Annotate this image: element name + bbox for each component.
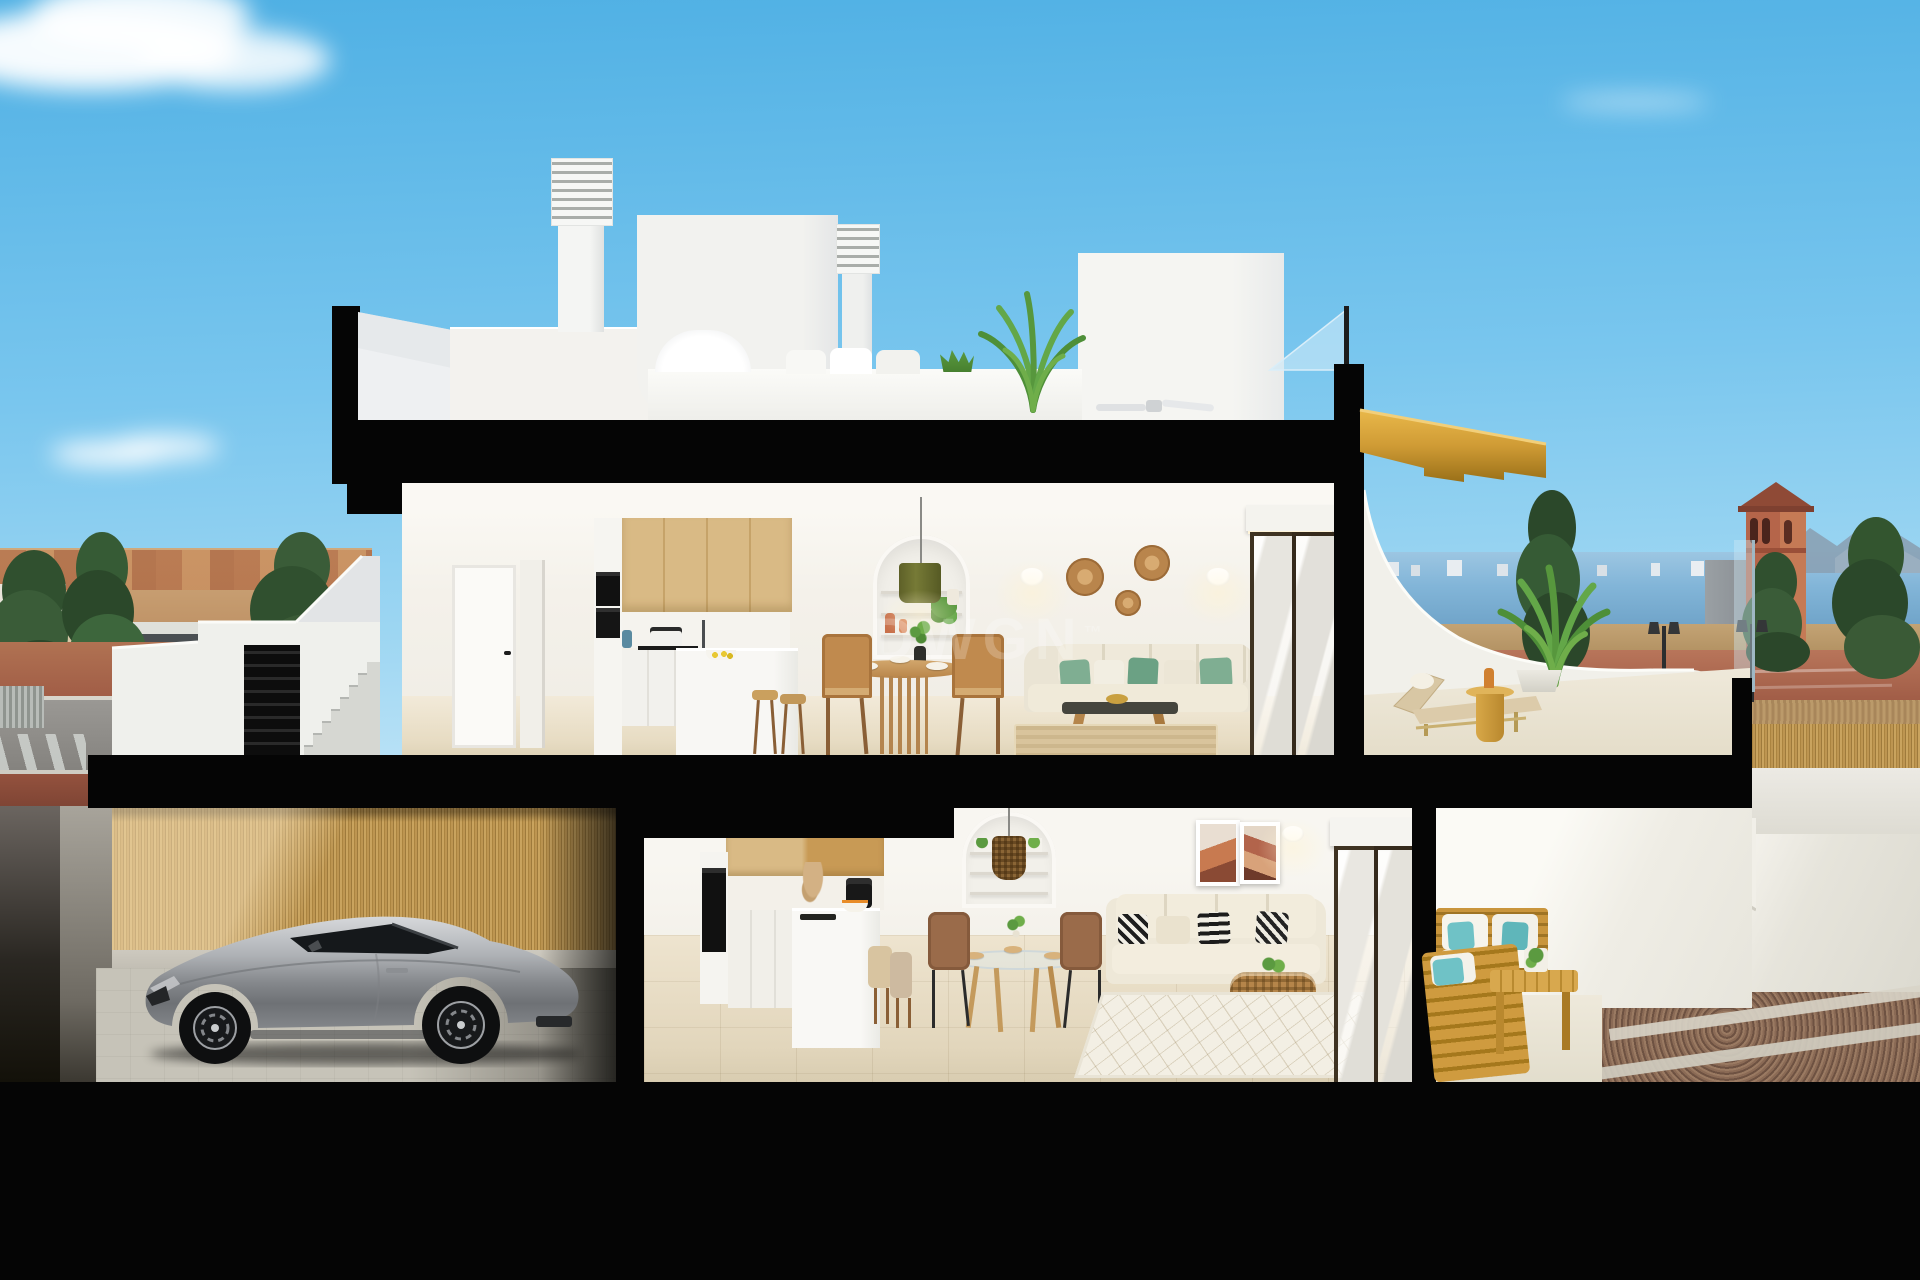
watermark: DWGN™ bbox=[872, 606, 1172, 670]
cloud-wisp bbox=[1560, 88, 1710, 118]
striped-pillow bbox=[1197, 911, 1231, 945]
patterned-pillow bbox=[1118, 914, 1148, 944]
dining-chair-left bbox=[818, 634, 880, 758]
roof-parapet-wall bbox=[450, 327, 650, 422]
table-plant bbox=[1256, 956, 1288, 976]
oven-lower bbox=[596, 608, 620, 638]
zebra-crossing bbox=[0, 734, 86, 774]
tree-conifer bbox=[1832, 515, 1920, 680]
oven-upper bbox=[596, 572, 620, 606]
rattan-wall-plate bbox=[1066, 558, 1104, 596]
rattan-wall-plate bbox=[1134, 545, 1170, 581]
louvered-chimney-cap bbox=[836, 224, 880, 274]
hall-door-open-leaf bbox=[520, 560, 545, 748]
patterned-pillow bbox=[1255, 911, 1289, 945]
bamboo-fence-right bbox=[1750, 724, 1920, 770]
table-plant bbox=[1004, 914, 1026, 950]
glass-door-panel bbox=[1292, 532, 1338, 764]
sconce-glow bbox=[1180, 560, 1256, 626]
rattan-pendant-lamp bbox=[992, 836, 1026, 880]
abstract-art bbox=[1196, 820, 1240, 886]
front-wheel bbox=[179, 992, 251, 1064]
ground-base-cabinets bbox=[728, 910, 798, 1008]
interfloor-slab-cut bbox=[88, 755, 1752, 808]
sconce-glow bbox=[1258, 818, 1328, 878]
ground-tall-unit bbox=[700, 852, 728, 1004]
garage-cut-wall bbox=[616, 806, 644, 1084]
cooking-pot bbox=[650, 627, 682, 647]
pampas-decor bbox=[798, 862, 828, 908]
diamond-rug bbox=[1074, 992, 1378, 1078]
table-pedestal-slats bbox=[880, 676, 928, 754]
cutaway-render-scene: DWGN™ bbox=[0, 0, 1920, 1280]
patio-bench-table bbox=[1490, 970, 1578, 1060]
entry-stairs bbox=[88, 550, 404, 762]
glass-door-panel bbox=[1250, 532, 1296, 764]
watermark-tm: ™ bbox=[1084, 623, 1102, 643]
teal-pillow bbox=[1432, 957, 1465, 986]
pendant-cord bbox=[1008, 806, 1010, 838]
garden-wall-right bbox=[1750, 768, 1920, 836]
bar-stool bbox=[780, 694, 806, 754]
corrugated-fence bbox=[0, 686, 44, 728]
kitchen-backsplash bbox=[622, 612, 790, 648]
ground-ceiling-bulkhead bbox=[644, 806, 954, 838]
hall-door bbox=[452, 565, 516, 748]
bench-plant bbox=[1524, 948, 1548, 972]
glass-door-panel bbox=[1334, 846, 1378, 1092]
louvered-chimney-cap bbox=[551, 158, 613, 226]
blind-box-upper bbox=[1246, 505, 1334, 531]
potted-plant-small bbox=[974, 838, 990, 852]
sink bbox=[800, 914, 836, 920]
foundation-cut bbox=[0, 1082, 1920, 1280]
rear-wheel bbox=[422, 986, 500, 1064]
blind-box-ground bbox=[1330, 818, 1412, 846]
watermark-text: DWGN bbox=[872, 607, 1084, 672]
bar-stool bbox=[752, 690, 778, 754]
teal-pillow bbox=[1447, 921, 1475, 951]
door-handle bbox=[504, 651, 511, 655]
beige-pillow bbox=[1156, 916, 1190, 944]
lemon-bowl bbox=[706, 650, 736, 660]
blue-vase bbox=[622, 630, 632, 648]
roof-parapet-left bbox=[356, 308, 452, 422]
glass-door-panel bbox=[1374, 846, 1416, 1092]
dining-chair-brown bbox=[924, 912, 976, 1032]
ground-island bbox=[792, 908, 880, 1048]
upper-kitchen-cabinets bbox=[622, 518, 792, 612]
timber-staircase bbox=[1358, 402, 1554, 488]
cloud-large bbox=[0, 0, 360, 160]
faucet bbox=[702, 620, 705, 648]
gold-bowl bbox=[1106, 694, 1128, 704]
amber-bottle bbox=[1484, 668, 1494, 688]
potted-plant-small bbox=[1026, 838, 1042, 852]
ceiling-fan bbox=[1096, 398, 1214, 416]
silver-sports-coupe bbox=[140, 884, 584, 1068]
cloud-small bbox=[50, 432, 230, 480]
roof-palm bbox=[975, 280, 1087, 422]
oven bbox=[702, 868, 726, 952]
glass-balustrade-roof bbox=[1266, 302, 1352, 372]
chimney-shaft bbox=[558, 222, 604, 332]
pendant-cord bbox=[920, 497, 922, 567]
roof-sofa-cushions bbox=[786, 348, 922, 374]
stools-ground bbox=[868, 944, 912, 1028]
kitchen-tall-unit bbox=[594, 518, 622, 756]
